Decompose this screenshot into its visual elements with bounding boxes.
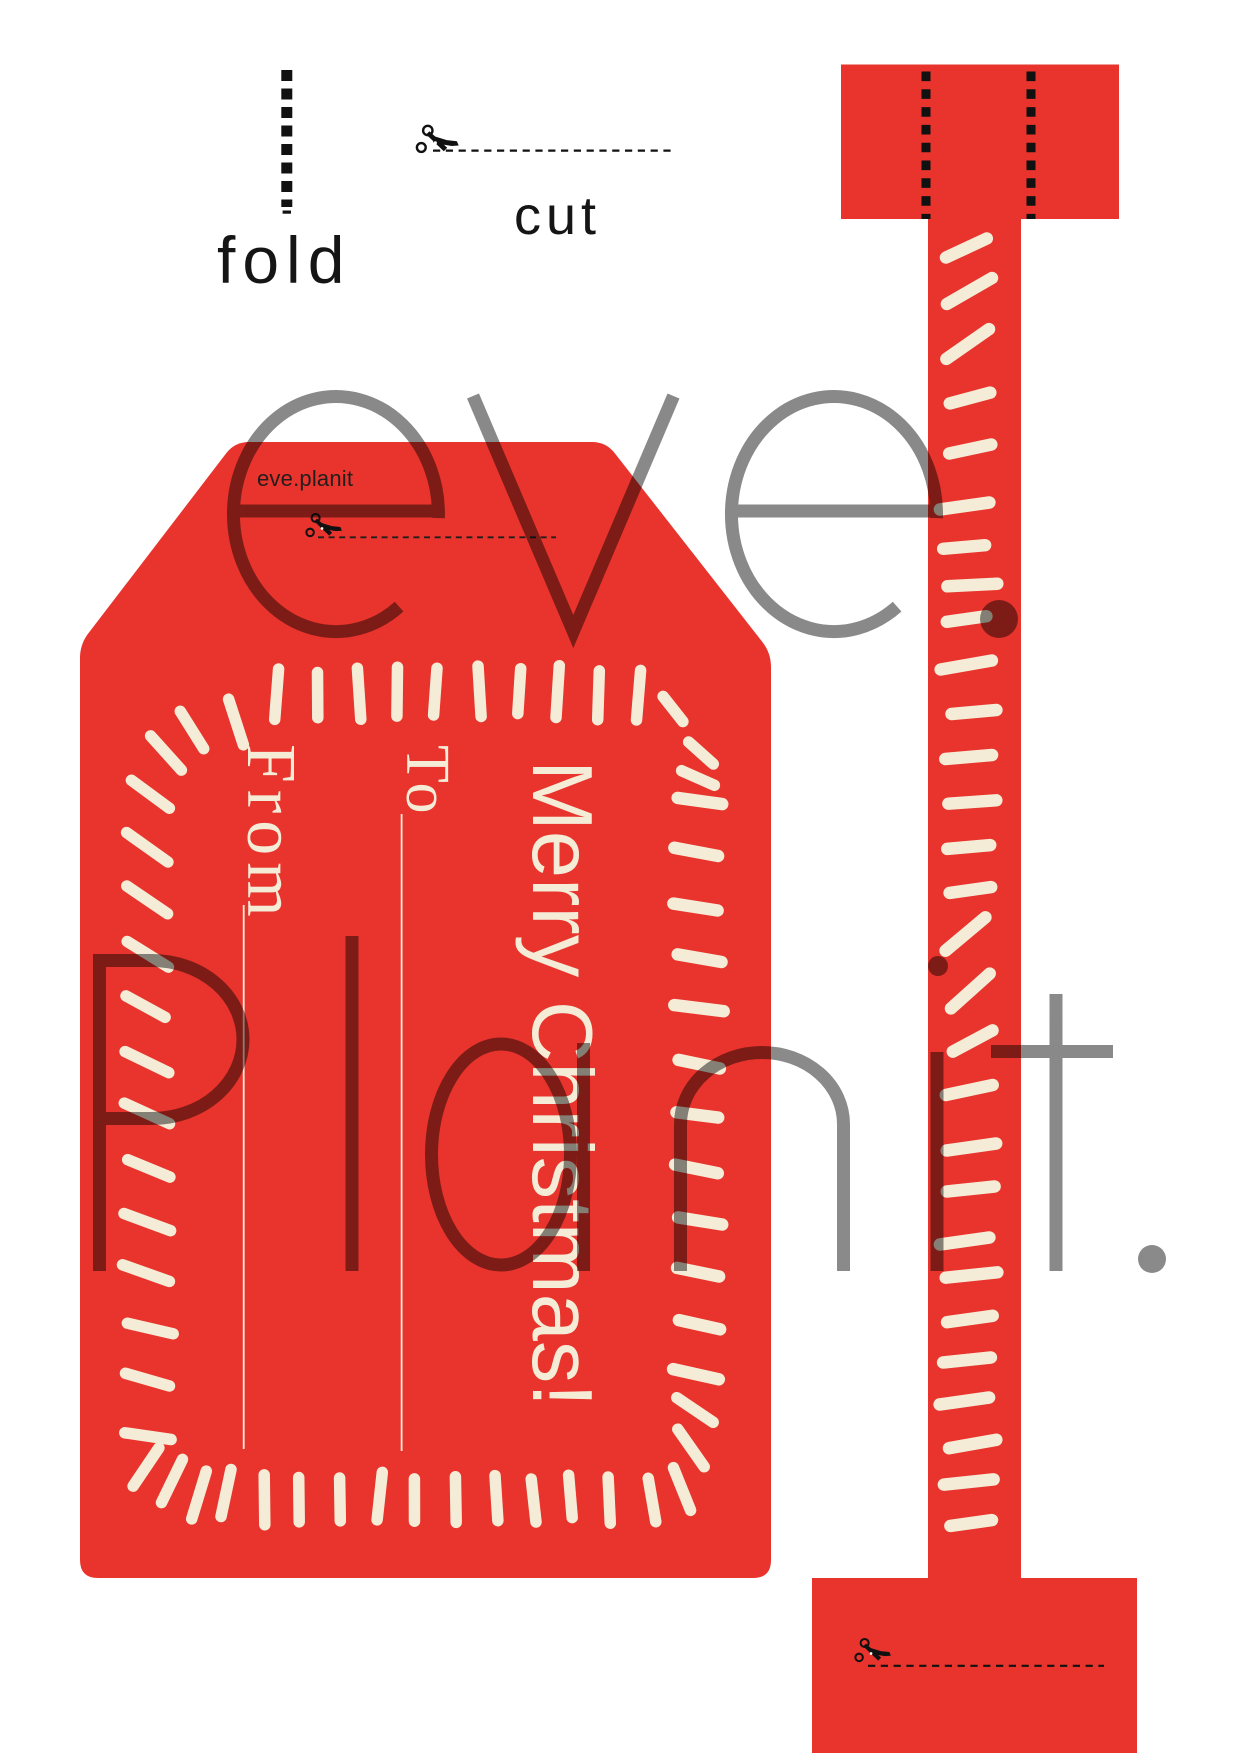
- svg-text:From: From: [232, 744, 309, 924]
- svg-text:cut: cut: [514, 186, 601, 246]
- svg-text:To: To: [393, 745, 461, 818]
- svg-text:fold: fold: [217, 223, 351, 297]
- svg-text:eve.planit: eve.planit: [257, 466, 353, 491]
